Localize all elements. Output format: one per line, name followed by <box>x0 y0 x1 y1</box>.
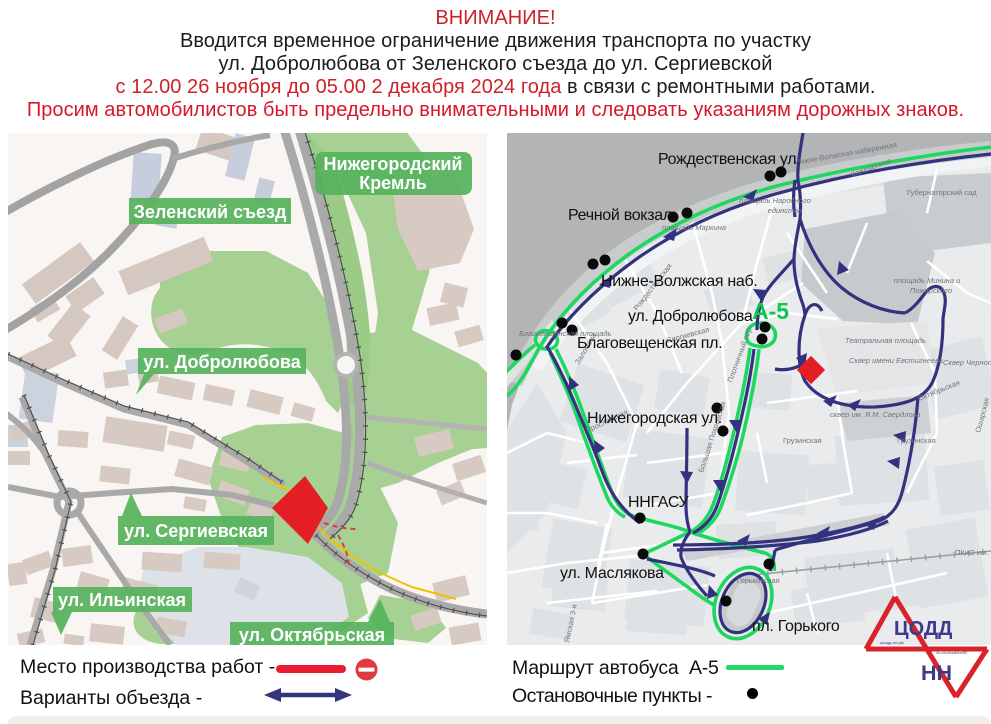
svg-text:ННГАСУ: ННГАСУ <box>628 494 690 511</box>
svg-text:Благовещенская пл.: Благовещенская пл. <box>577 335 722 352</box>
svg-text:циодд-нн.рф: циодд-нн.рф <box>880 640 904 645</box>
svg-text:Речной вокзал: Речной вокзал <box>568 207 672 224</box>
svg-text:площадь Минина и: площадь Минина и <box>894 276 961 285</box>
svg-text:Зеленский съезд: Зеленский съезд <box>134 202 287 222</box>
svg-text:Грузинская: Грузинская <box>897 436 936 445</box>
svg-text:Горьковская: Горьковская <box>737 576 780 585</box>
svg-text:Грузинская: Грузинская <box>783 436 822 445</box>
svg-text:Театральная площадь: Театральная площадь <box>845 336 926 345</box>
svg-text:ПКиО им. Кул: ПКиО им. Кул <box>955 548 991 557</box>
svg-text:сквер им. Я.М. Свердлова: сквер им. Я.М. Свердлова <box>830 410 921 419</box>
svg-text:ул. Добролюбова: ул. Добролюбова <box>628 308 753 325</box>
svg-text:Нижегородская ул.: Нижегородская ул. <box>587 410 722 427</box>
svg-text:ул. Ильинская: ул. Ильинская <box>58 590 186 610</box>
svg-text:НН: НН <box>921 661 952 685</box>
svg-text:Нижегородский: Нижегородский <box>324 154 463 174</box>
svg-text:единства: единства <box>768 206 802 215</box>
svg-text:Нижне-Волжская наб.: Нижне-Волжская наб. <box>601 273 758 290</box>
svg-text:ул. Октябрьская: ул. Октябрьская <box>239 625 385 645</box>
svg-text:Губернаторский сад: Губернаторский сад <box>907 188 977 197</box>
svg-text:Сквер имени Евстигнеева: Сквер имени Евстигнеева <box>849 356 943 365</box>
svg-text:ул. Маслякова: ул. Маслякова <box>560 565 664 582</box>
svg-text:Рождественская ул.: Рождественская ул. <box>658 151 800 168</box>
svg-text:пл. Горького: пл. Горького <box>752 618 840 635</box>
svg-text:Кремль: Кремль <box>359 173 427 193</box>
svg-text:площадь Маркина: площадь Маркина <box>662 223 726 232</box>
svg-text:Сквер Чернопрудский: Сквер Чернопрудский <box>943 358 991 367</box>
svg-text:Пожарского: Пожарского <box>910 286 952 295</box>
svg-text:площадь Народного: площадь Народного <box>739 196 811 205</box>
svg-text:ул. Добролюбова: ул. Добролюбова <box>143 352 301 372</box>
svg-text:А-5: А-5 <box>752 298 789 324</box>
svg-text:ул. Сергиевская: ул. Сергиевская <box>124 521 268 541</box>
svg-text:vk.com/coddnn52: vk.com/coddnn52 <box>936 650 968 655</box>
svg-text:ЦОДД: ЦОДД <box>894 618 952 640</box>
